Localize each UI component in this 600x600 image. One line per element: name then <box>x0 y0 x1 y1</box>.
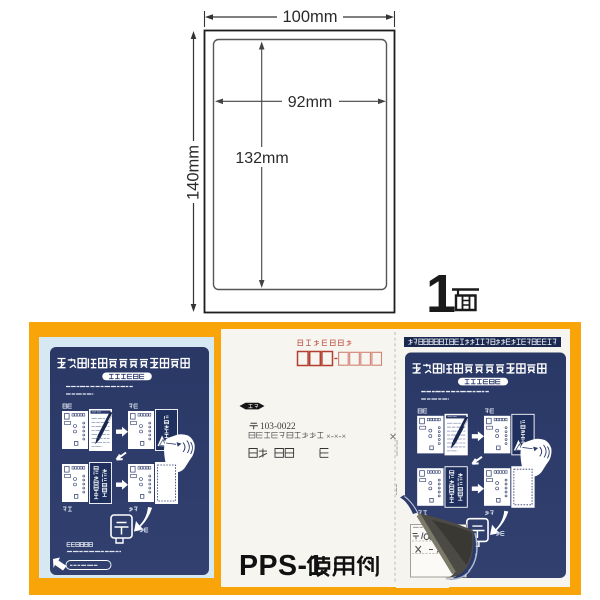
svg-text:103-0022: 103-0022 <box>260 422 296 432</box>
svg-text:92mm: 92mm <box>288 94 332 111</box>
svg-text:1: 1 <box>426 264 456 324</box>
svg-text:×-×-×: ×-×-× <box>326 431 346 441</box>
svg-text:132mm: 132mm <box>235 150 288 167</box>
svg-text:140mm: 140mm <box>185 145 203 200</box>
svg-text:100mm: 100mm <box>282 8 337 26</box>
